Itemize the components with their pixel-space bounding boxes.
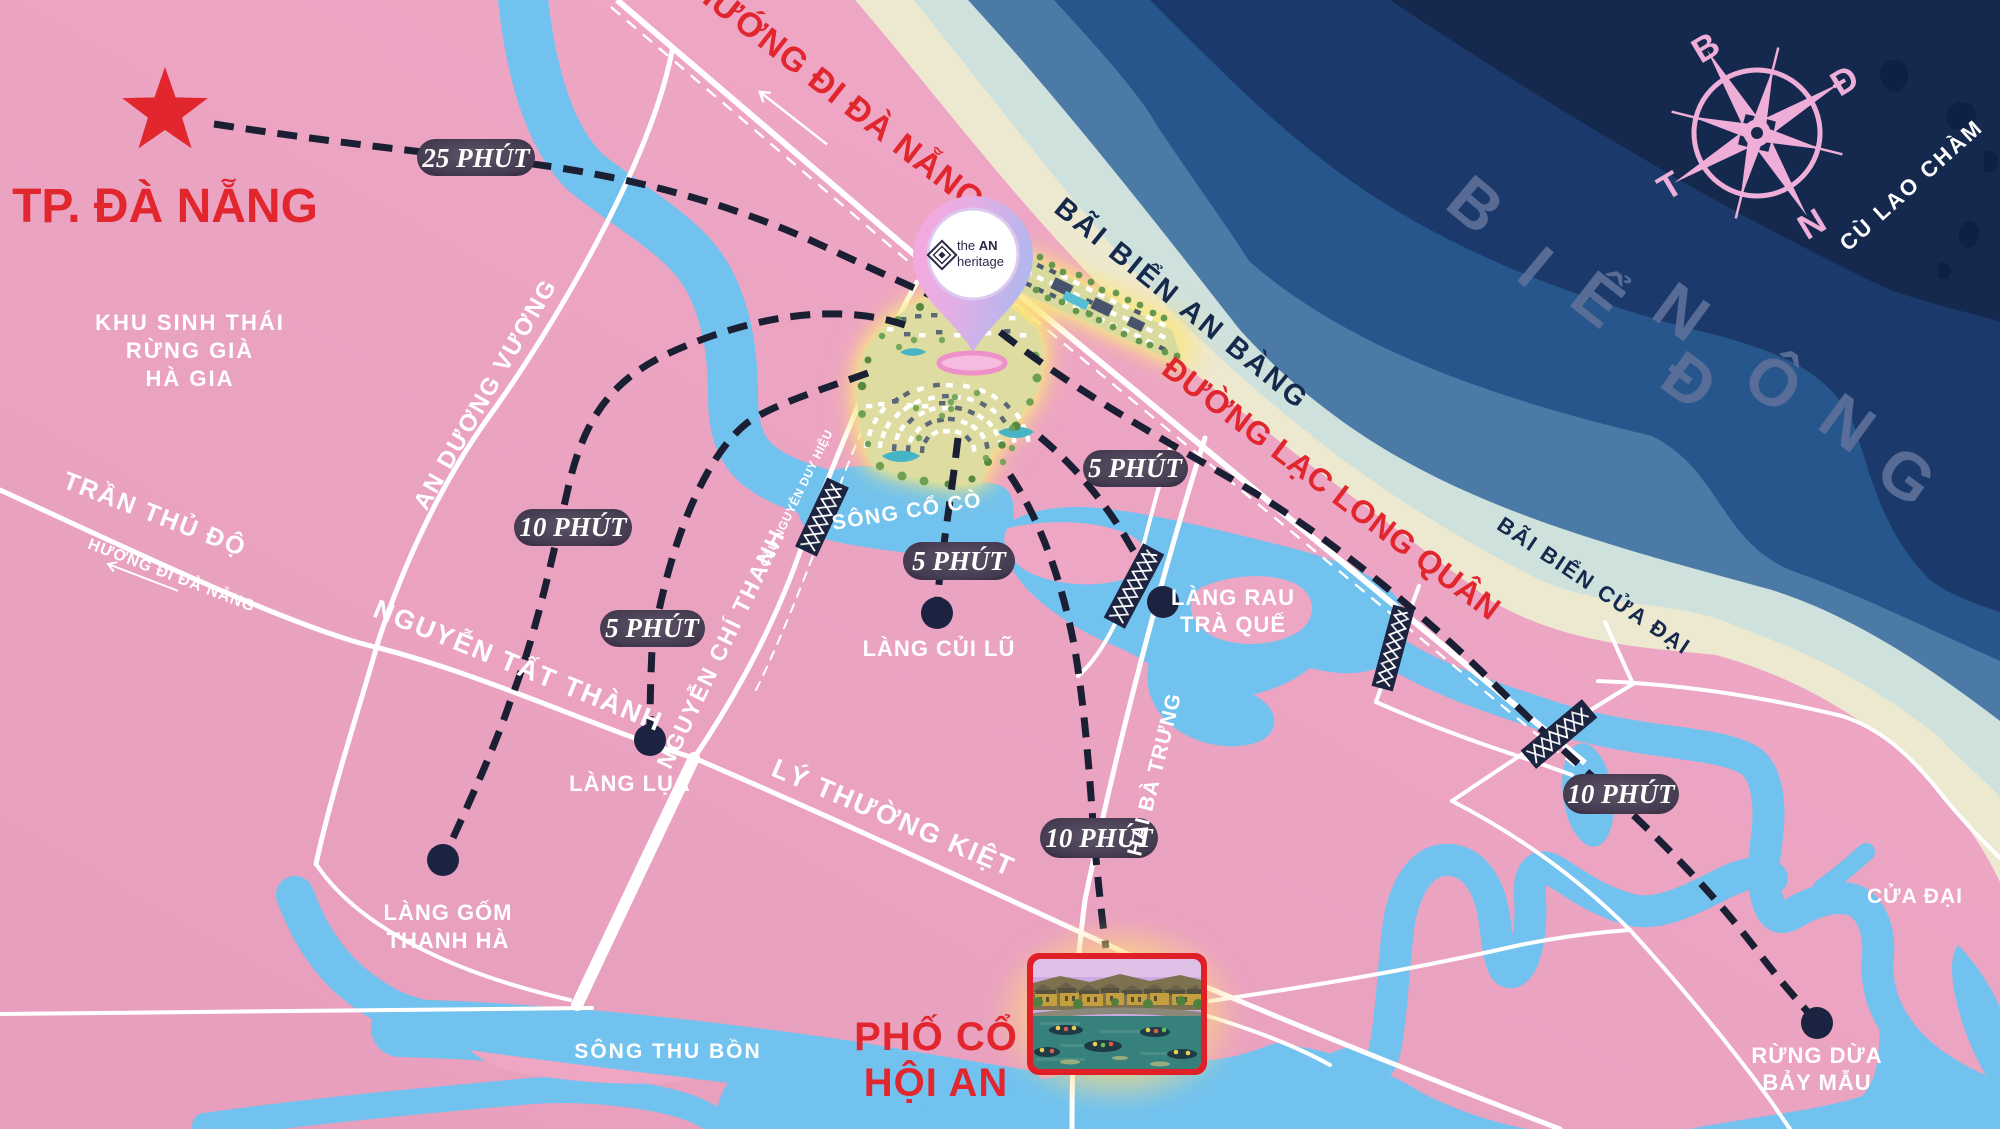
svg-text:heritage: heritage [957, 254, 1004, 269]
svg-text:TRÀ QUẾ: TRÀ QUẾ [1180, 612, 1286, 637]
svg-text:10 PHÚT: 10 PHÚT [1567, 779, 1676, 809]
svg-text:HỘI AN: HỘI AN [864, 1059, 1009, 1105]
svg-text:5 PHÚT: 5 PHÚT [1088, 453, 1183, 483]
svg-text:10 PHÚT: 10 PHÚT [519, 512, 628, 542]
svg-text:CỬA ĐẠI: CỬA ĐẠI [1867, 884, 1963, 908]
svg-text:LÀNG GỐM: LÀNG GỐM [384, 899, 513, 925]
svg-text:SÔNG THU BỒN: SÔNG THU BỒN [574, 1039, 761, 1063]
svg-text:BẢY MẪU: BẢY MẪU [1762, 1069, 1871, 1095]
svg-text:LÀNG LỤA: LÀNG LỤA [569, 771, 691, 796]
svg-text:THANH HÀ: THANH HÀ [387, 928, 510, 953]
svg-text:RỪNG DỪA: RỪNG DỪA [1751, 1043, 1882, 1068]
svg-text:the AN: the AN [957, 238, 997, 253]
svg-text:KHU SINH THÁI: KHU SINH THÁI [95, 310, 285, 335]
svg-text:LÀNG RAU: LÀNG RAU [1171, 585, 1295, 610]
svg-text:TP. ĐÀ NẴNG: TP. ĐÀ NẴNG [12, 178, 318, 233]
svg-text:HÀ GIA: HÀ GIA [146, 366, 235, 391]
svg-text:PHỐ CỔ: PHỐ CỔ [854, 1012, 1018, 1059]
svg-text:5 PHÚT: 5 PHÚT [605, 613, 700, 643]
svg-text:LÀNG CỦI LŨ: LÀNG CỦI LŨ [863, 636, 1016, 661]
svg-text:5 PHÚT: 5 PHÚT [912, 546, 1007, 576]
svg-text:25 PHÚT: 25 PHÚT [421, 143, 531, 173]
svg-text:RỪNG GIÀ: RỪNG GIÀ [126, 338, 254, 363]
